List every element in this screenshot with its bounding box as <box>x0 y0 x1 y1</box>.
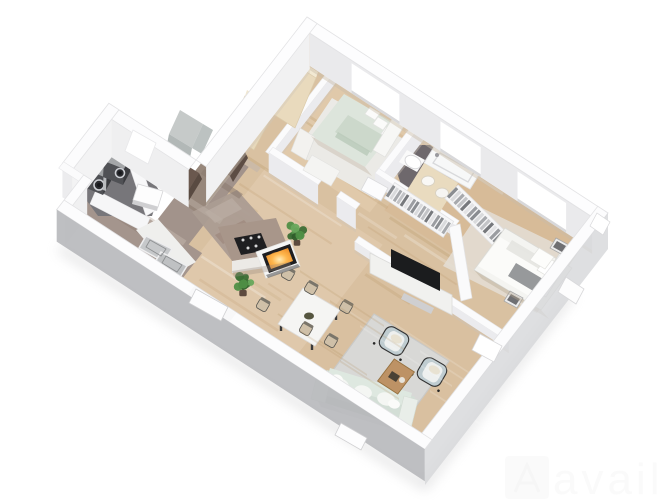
svg-text:avail: avail <box>553 455 664 500</box>
